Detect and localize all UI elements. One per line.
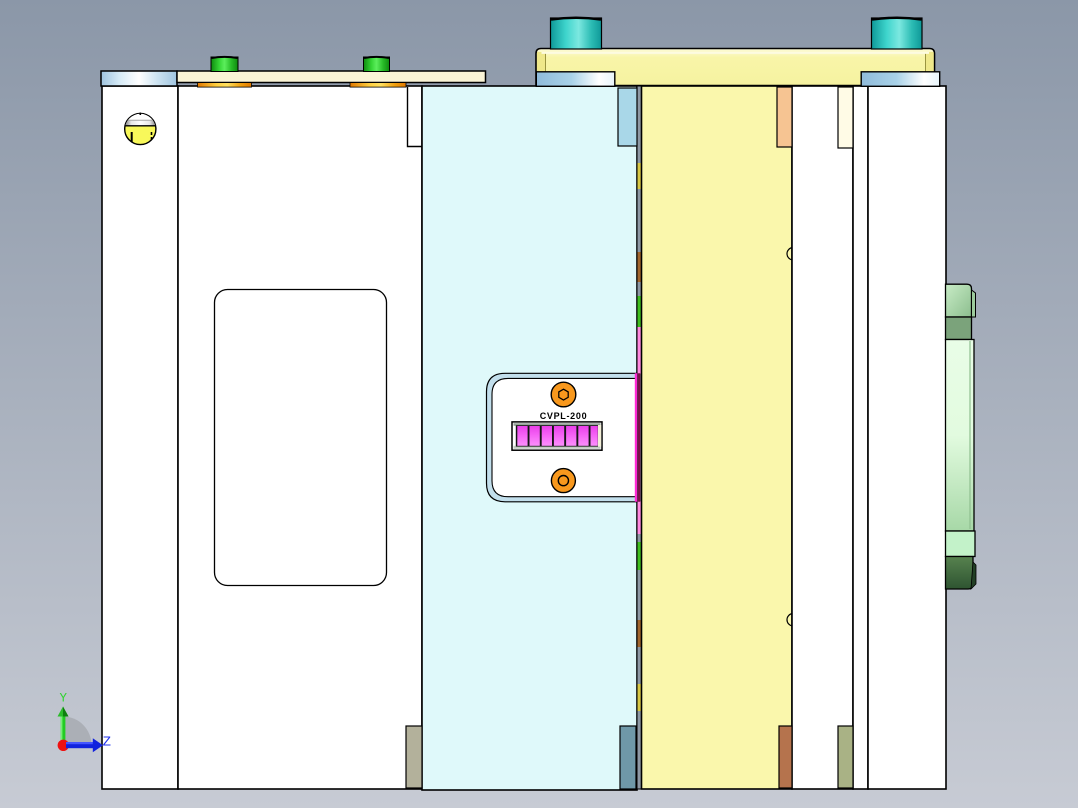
svg-text:Z: Z (103, 735, 111, 751)
svg-text:Y: Y (60, 692, 68, 706)
svg-text:CVPL-200: CVPL-200 (540, 411, 588, 421)
